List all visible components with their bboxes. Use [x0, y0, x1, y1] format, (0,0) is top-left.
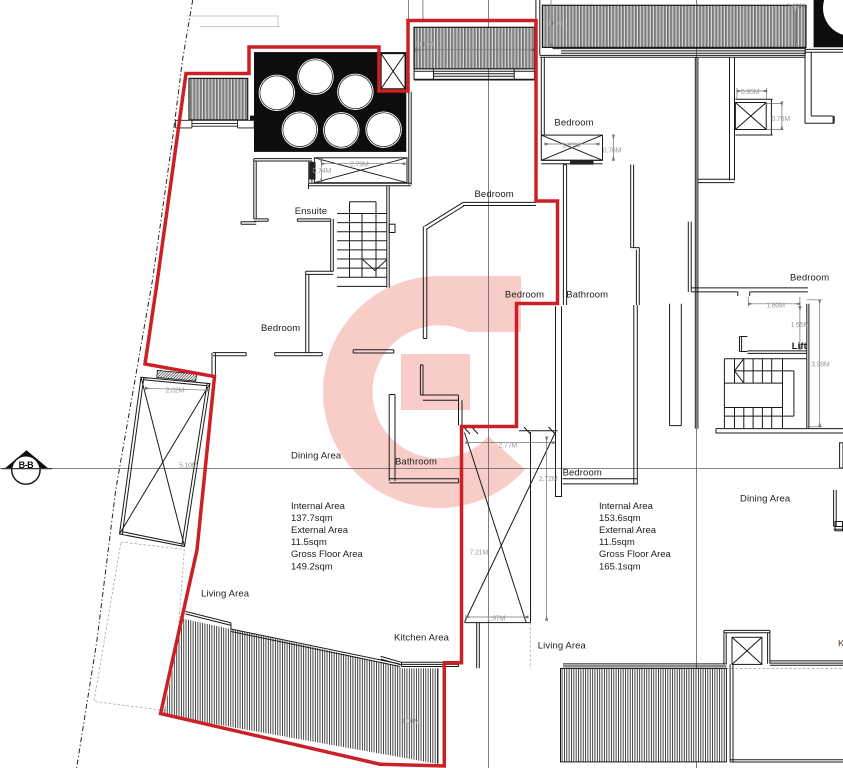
svg-text:3.98M: 3.98M — [811, 361, 830, 368]
svg-text:0.76M: 0.76M — [772, 116, 791, 123]
svg-text:1.97M: 1.97M — [487, 615, 506, 622]
svg-text:165.1sqm: 165.1sqm — [599, 561, 641, 572]
svg-text:Gross Floor Area: Gross Floor Area — [291, 549, 364, 560]
svg-text:Internal Area: Internal Area — [599, 501, 654, 512]
svg-text:0.95M: 0.95M — [741, 89, 760, 96]
svg-text:1.65M: 1.65M — [791, 322, 810, 329]
svg-text:0.76M: 0.76M — [603, 147, 622, 154]
svg-text:Bedroom: Bedroom — [563, 468, 602, 479]
svg-text:Gross Floor Area: Gross Floor Area — [599, 549, 672, 560]
svg-text:Dining Area: Dining Area — [291, 451, 342, 462]
svg-text:B-B: B-B — [19, 460, 34, 470]
svg-text:149.2sqm: 149.2sqm — [291, 561, 333, 572]
svg-text:7.21M: 7.21M — [470, 550, 489, 557]
svg-text:Bathroom: Bathroom — [566, 290, 608, 301]
svg-text:2.60M: 2.60M — [787, 4, 806, 11]
svg-text:K: K — [838, 639, 843, 650]
svg-text:153.6sqm: 153.6sqm — [599, 513, 641, 524]
svg-text:Living Area: Living Area — [538, 640, 587, 651]
svg-text:2.79M: 2.79M — [350, 162, 369, 169]
svg-text:1.80M: 1.80M — [766, 302, 785, 309]
svg-text:1.81M: 1.81M — [562, 143, 581, 150]
svg-text:External Area: External Area — [599, 525, 657, 536]
svg-text:Bedroom: Bedroom — [261, 323, 300, 334]
svg-text:2.77M: 2.77M — [499, 442, 518, 449]
svg-text:Ensuite: Ensuite — [295, 206, 327, 217]
svg-text:Bedroom: Bedroom — [554, 118, 593, 129]
svg-text:1.80M: 1.80M — [415, 42, 434, 49]
svg-text:Bathroom: Bathroom — [395, 457, 437, 468]
svg-text:5.10M: 5.10M — [179, 462, 198, 469]
svg-text:Dining Area: Dining Area — [740, 494, 791, 505]
svg-text:5.04M: 5.04M — [544, 21, 563, 28]
svg-text:2.02M: 2.02M — [166, 387, 185, 394]
svg-text:Bedroom: Bedroom — [790, 273, 829, 284]
svg-text:0.74M: 0.74M — [313, 168, 332, 175]
svg-text:External Area: External Area — [291, 525, 349, 536]
svg-text:137.7sqm: 137.7sqm — [291, 513, 333, 524]
svg-text:2.72M: 2.72M — [539, 476, 558, 483]
svg-text:11.5sqm: 11.5sqm — [599, 537, 635, 548]
svg-text:Living Area: Living Area — [201, 588, 250, 599]
svg-text:Internal Area: Internal Area — [291, 501, 346, 512]
svg-text:3.00M: 3.00M — [401, 719, 420, 726]
svg-text:Bedroom: Bedroom — [475, 189, 514, 200]
svg-text:Bedroom: Bedroom — [505, 290, 544, 301]
svg-text:Lift: Lift — [792, 341, 808, 352]
svg-text:Kitchen Area: Kitchen Area — [394, 632, 450, 643]
svg-text:11.5sqm: 11.5sqm — [291, 537, 327, 548]
